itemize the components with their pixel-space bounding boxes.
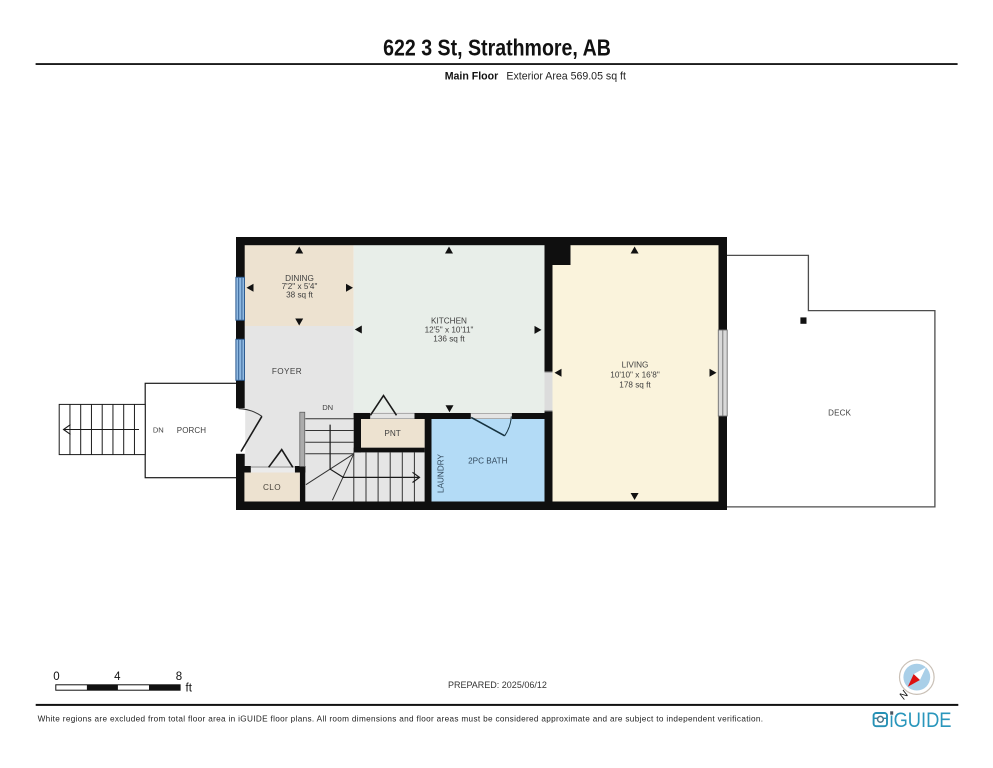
svg-text:White regions are excluded fro: White regions are excluded from total fl…	[38, 714, 764, 723]
svg-text:10'10" x 16'8": 10'10" x 16'8"	[610, 371, 660, 380]
svg-text:136 sq ft: 136 sq ft	[433, 334, 465, 343]
svg-text:622 3 St, Strathmore, AB: 622 3 St, Strathmore, AB	[383, 35, 611, 61]
svg-text:LAUNDRY: LAUNDRY	[437, 453, 446, 493]
svg-text:0: 0	[53, 671, 59, 683]
svg-text:LIVING: LIVING	[622, 361, 649, 370]
svg-text:178 sq ft: 178 sq ft	[619, 381, 651, 390]
svg-text:PORCH: PORCH	[177, 426, 207, 435]
svg-text:PREPARED: 2025/06/12: PREPARED: 2025/06/12	[448, 680, 547, 690]
svg-text:4: 4	[114, 671, 121, 683]
svg-text:KITCHEN: KITCHEN	[431, 317, 467, 326]
svg-text:Main Floor: Main Floor	[445, 71, 499, 83]
svg-text:Exterior Area 569.05 sq ft: Exterior Area 569.05 sq ft	[506, 71, 626, 83]
svg-text:DECK: DECK	[828, 408, 851, 417]
svg-text:PNT: PNT	[384, 429, 400, 438]
svg-text:ft: ft	[186, 683, 193, 695]
svg-text:38 sq ft: 38 sq ft	[286, 291, 314, 300]
svg-text:2PC BATH: 2PC BATH	[468, 456, 508, 465]
svg-text:CLO: CLO	[263, 483, 281, 492]
svg-text:iGUIDE: iGUIDE	[890, 709, 952, 732]
svg-text:FOYER: FOYER	[272, 367, 302, 376]
svg-text:DN: DN	[153, 425, 164, 434]
svg-text:8: 8	[176, 671, 182, 683]
svg-text:DN: DN	[322, 403, 333, 412]
svg-text:12'5" x 10'11": 12'5" x 10'11"	[425, 326, 474, 335]
